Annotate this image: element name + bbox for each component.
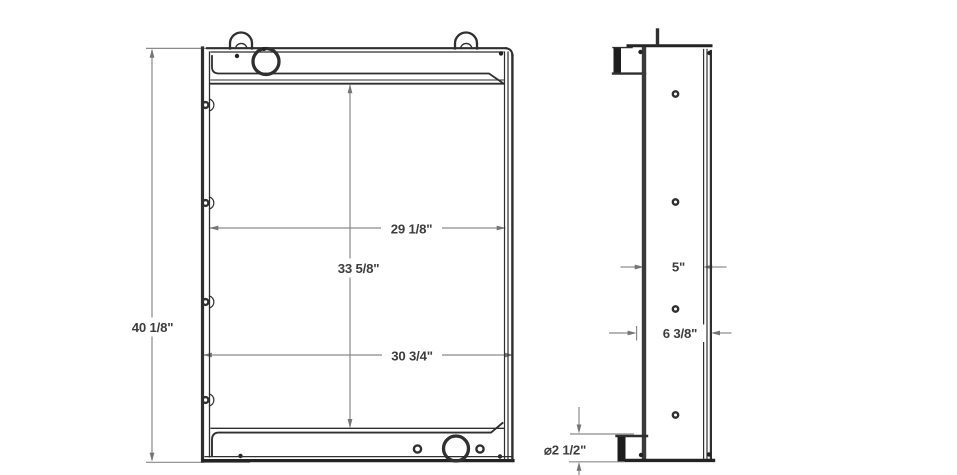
dimension-core-height bbox=[348, 84, 353, 428]
side-mounting-hole bbox=[673, 91, 678, 96]
bolt-dot bbox=[499, 51, 503, 55]
lifting-eye-left bbox=[230, 33, 252, 49]
mounting-hole bbox=[203, 299, 209, 305]
arrow-left bbox=[711, 331, 720, 336]
lifting-eye-outer bbox=[230, 33, 252, 49]
bolt-dot bbox=[235, 54, 239, 58]
side-mounting-holes bbox=[673, 91, 678, 417]
bolt-dot bbox=[707, 452, 711, 456]
dimension-label-outlet-diameter: ⌀2 1/2" bbox=[544, 443, 586, 458]
technical-drawing: 40 1/8" 33 5/8" 29 1/8" 30 3/4" 5" 6 3/8… bbox=[0, 0, 957, 475]
weld-dot bbox=[643, 198, 645, 200]
dimension-label-overall-width: 30 3/4" bbox=[391, 349, 433, 364]
lower-bracket-bar bbox=[618, 437, 626, 462]
arrow-left bbox=[203, 353, 212, 358]
arrow-up bbox=[150, 49, 155, 58]
dimension-overall-height bbox=[146, 48, 250, 462]
labels-layer: 40 1/8" 33 5/8" 29 1/8" 30 3/4" 5" 6 3/8… bbox=[123, 219, 705, 458]
dimension-label-core-height: 33 5/8" bbox=[338, 261, 380, 276]
top-right-corner bbox=[506, 48, 512, 56]
dimension-core-width bbox=[209, 226, 505, 231]
arrow-down bbox=[150, 453, 155, 462]
drain-hole bbox=[414, 445, 421, 452]
mounting-hole bbox=[203, 102, 209, 108]
filler-neck-tab bbox=[262, 47, 266, 51]
weld-dot bbox=[643, 300, 645, 302]
dimension-overall-width bbox=[203, 353, 514, 358]
arrow-up bbox=[577, 462, 582, 471]
left-mounting-holes bbox=[203, 99, 214, 406]
side-mounting-hole bbox=[673, 412, 678, 417]
mounting-hole bbox=[203, 397, 209, 403]
drain-hole bbox=[476, 445, 483, 452]
outlet-pipe bbox=[444, 436, 469, 461]
bolt-dot bbox=[638, 50, 642, 54]
hole-boss bbox=[210, 296, 214, 308]
arrow-down bbox=[577, 425, 582, 434]
upper-bracket-bar bbox=[614, 48, 622, 74]
dimension-label-core-depth: 5" bbox=[672, 260, 685, 275]
dimension-label-core-width: 29 1/8" bbox=[391, 222, 433, 237]
arrow-left bbox=[209, 226, 218, 231]
arrow-down bbox=[348, 419, 353, 428]
lifting-eye-outer bbox=[455, 33, 477, 49]
dimension-label-overall-height: 40 1/8" bbox=[132, 320, 174, 335]
side-view bbox=[613, 30, 714, 461]
arrow-right bbox=[628, 331, 637, 336]
hole-boss bbox=[210, 197, 214, 209]
drawing-canvas: 40 1/8" 33 5/8" 29 1/8" 30 3/4" 5" 6 3/8… bbox=[0, 0, 957, 475]
weld-dot bbox=[643, 305, 645, 307]
hole-boss bbox=[210, 394, 214, 406]
front-view bbox=[203, 33, 514, 462]
mounting-hole bbox=[203, 200, 209, 206]
dimension-label-overall-depth: 6 3/8" bbox=[663, 326, 697, 341]
side-mounting-hole bbox=[673, 306, 678, 311]
weld-dot bbox=[643, 203, 645, 205]
lifting-eye-right bbox=[455, 33, 477, 49]
bolt-dot bbox=[707, 51, 711, 55]
bolt-dot bbox=[639, 453, 643, 457]
hole-boss bbox=[210, 99, 214, 111]
side-mounting-hole bbox=[673, 199, 678, 204]
arrow-up bbox=[348, 84, 353, 93]
